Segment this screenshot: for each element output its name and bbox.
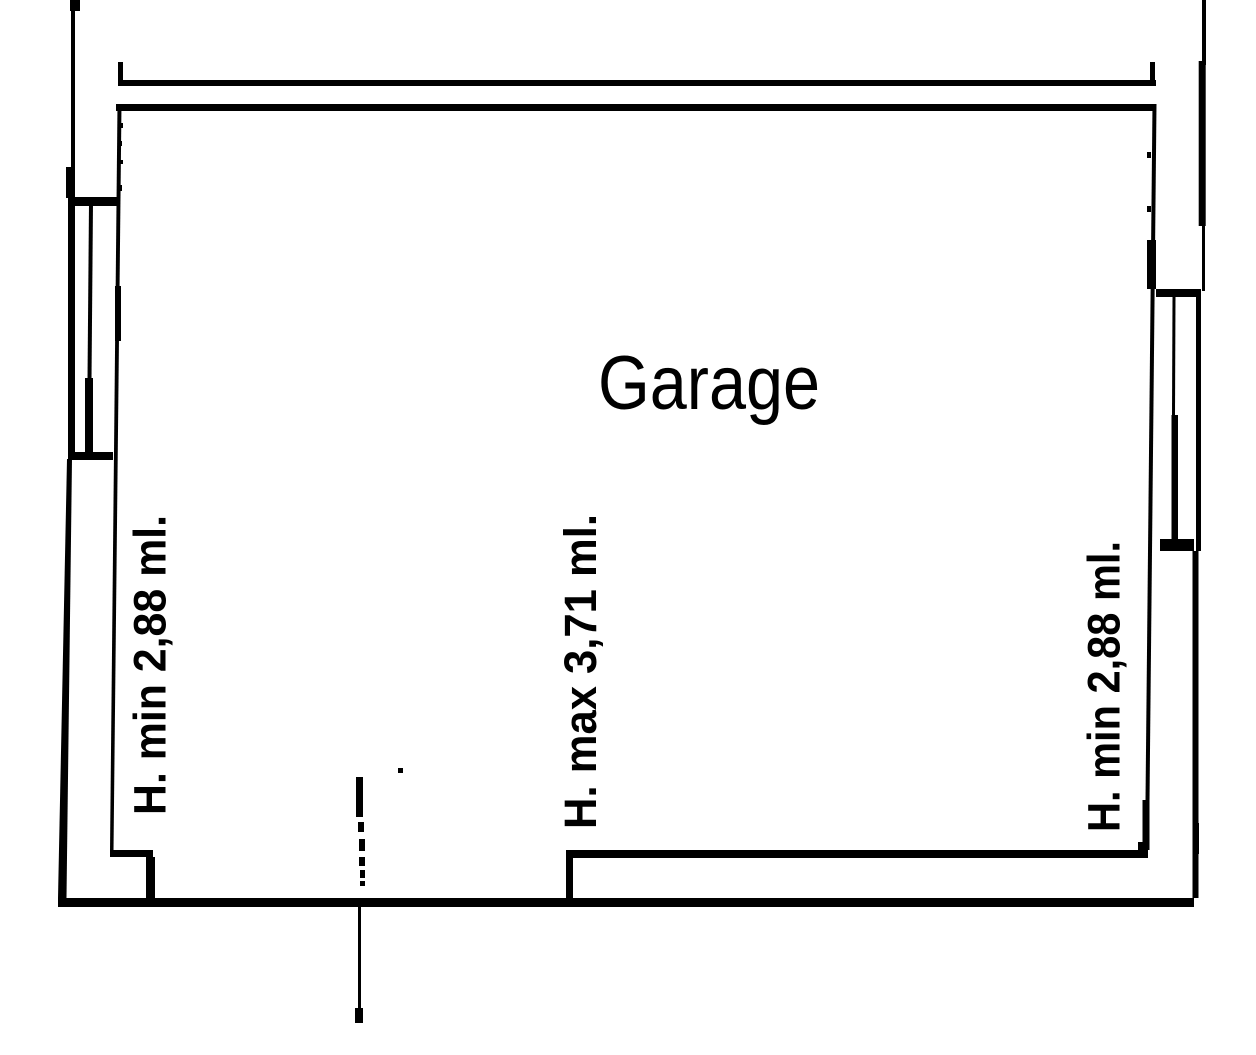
svg-text:H. min 2,88 ml.: H. min 2,88 ml.: [125, 515, 176, 815]
svg-text:H. max 3,71 ml.: H. max 3,71 ml.: [555, 514, 606, 829]
svg-text:H. min 2,88 ml.: H. min 2,88 ml.: [1079, 541, 1130, 832]
svg-text:Garage: Garage: [598, 341, 820, 426]
